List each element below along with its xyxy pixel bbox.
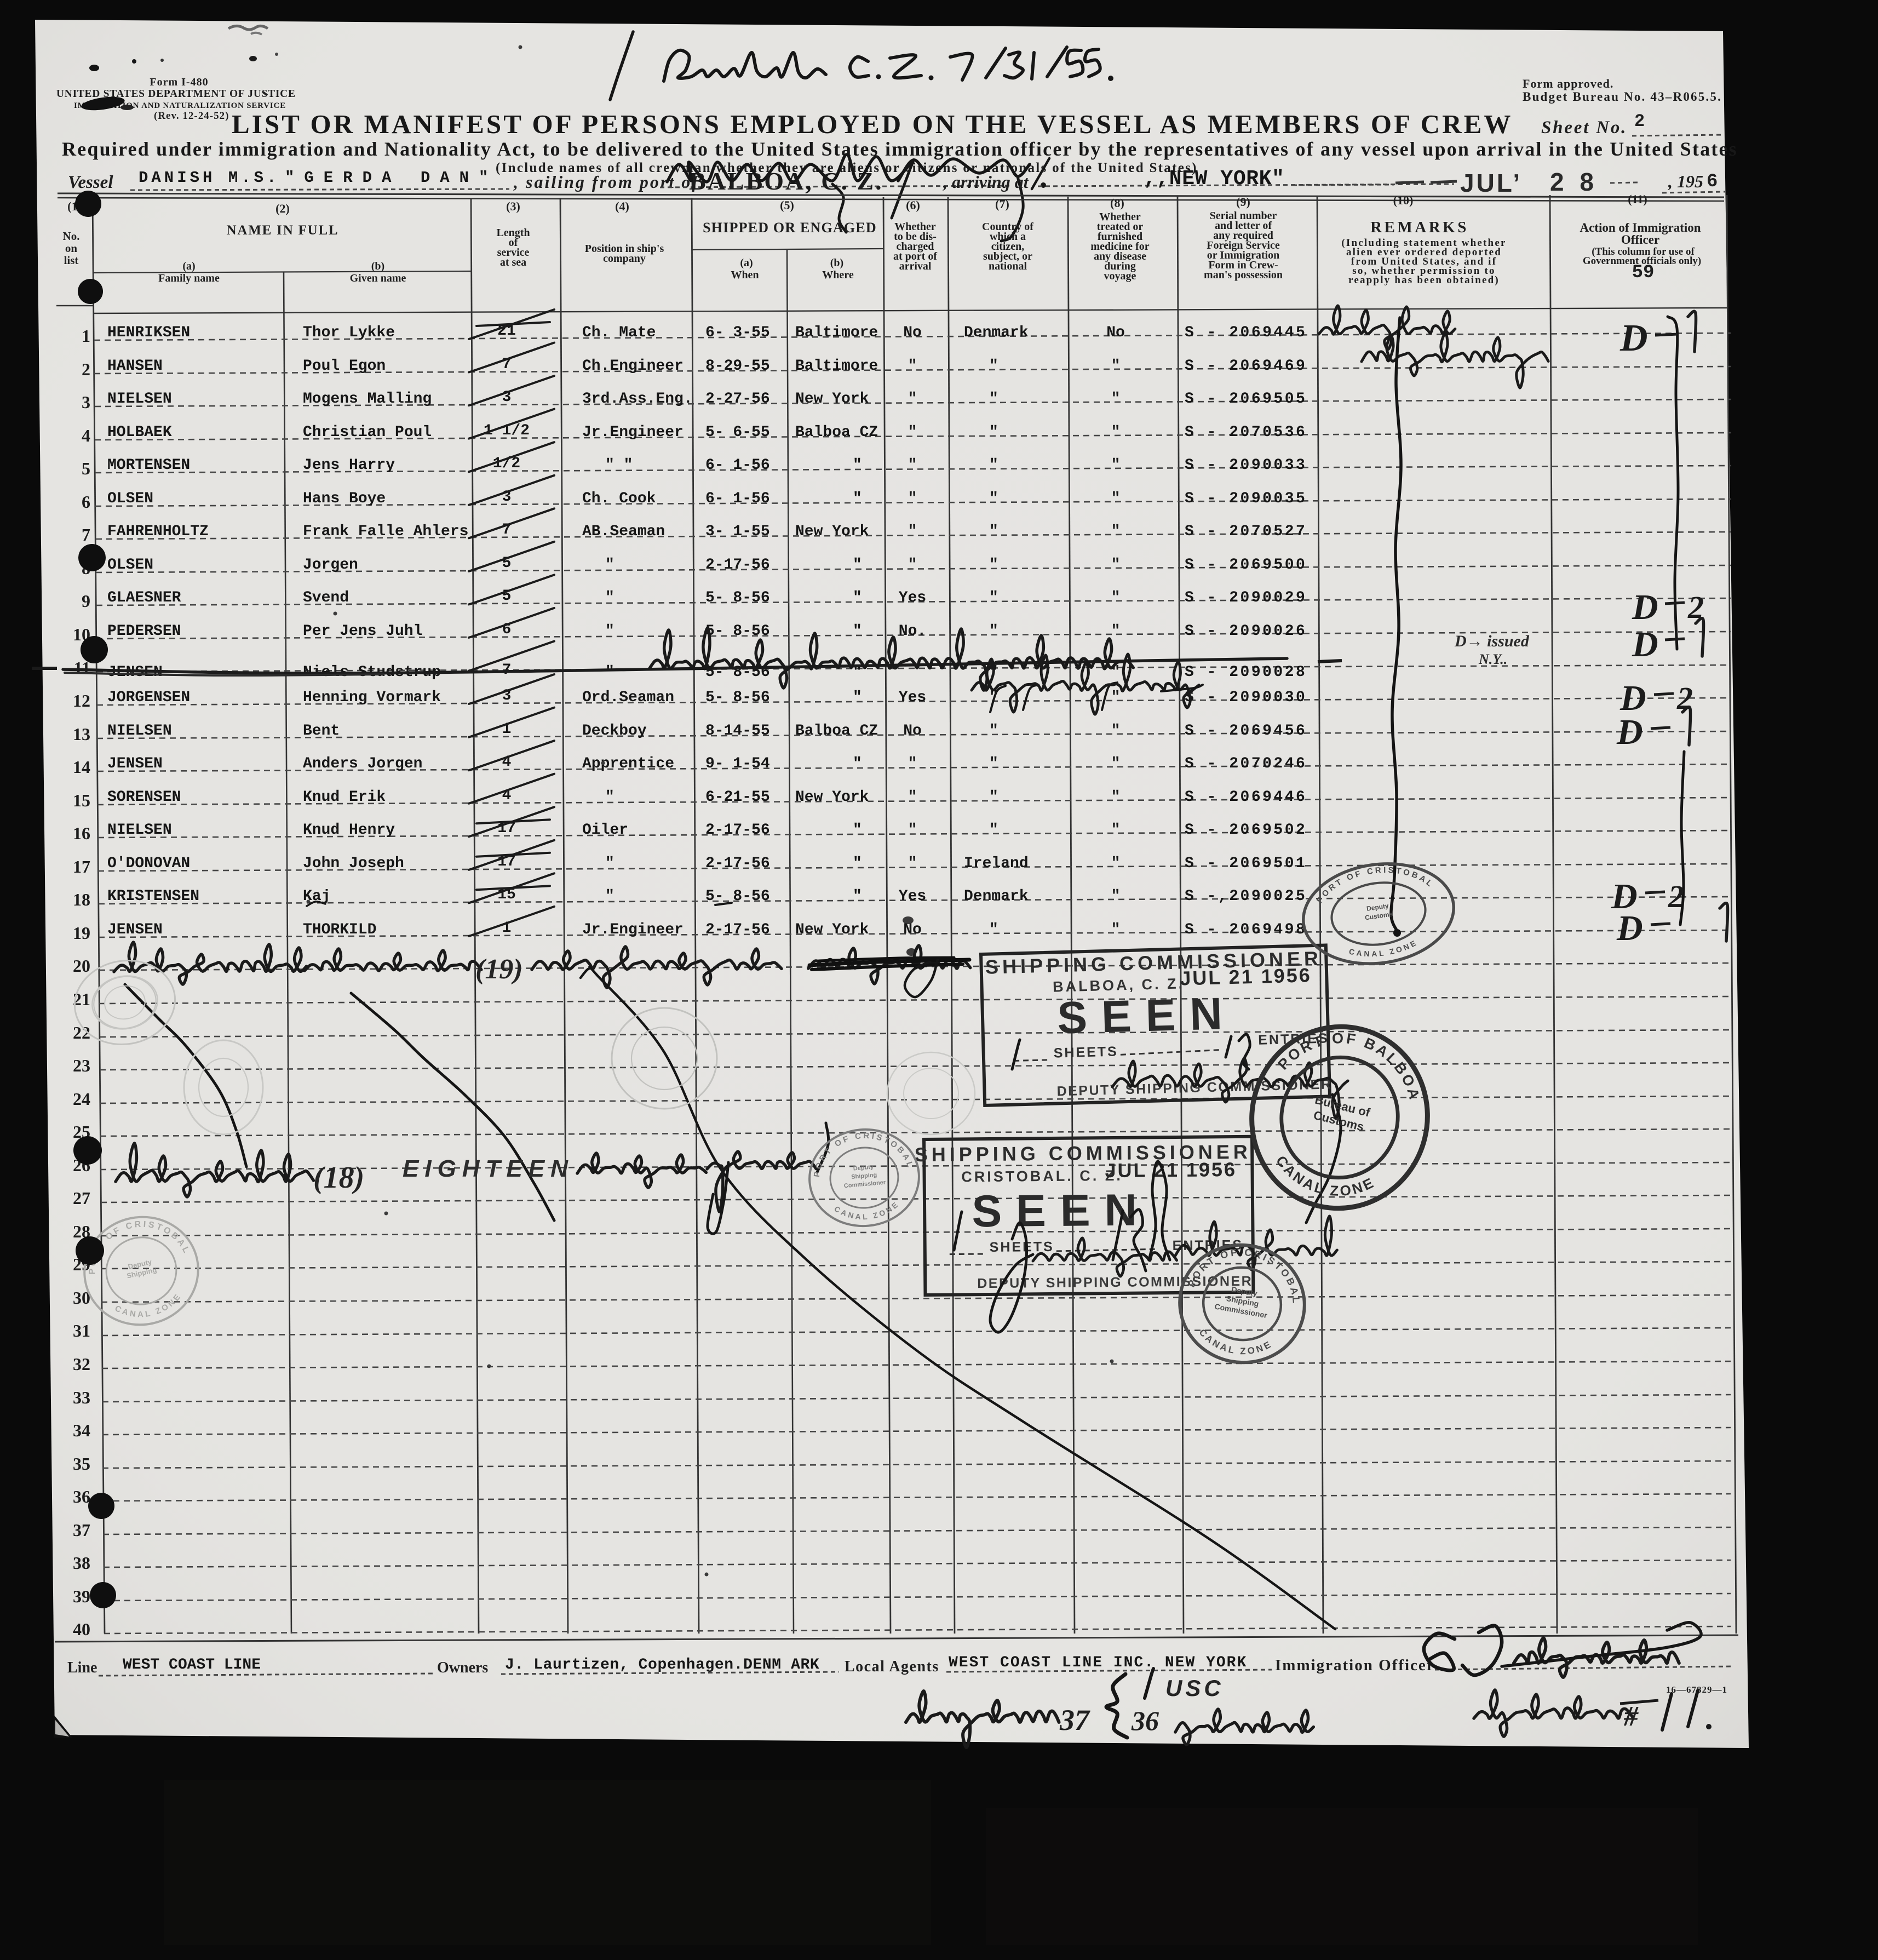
svg-text:5: 5 <box>82 459 90 478</box>
svg-text:Ch. Cook: Ch. Cook <box>582 490 656 507</box>
svg-text:": " <box>989 921 998 938</box>
svg-text:PEDERSEN: PEDERSEN <box>107 623 181 640</box>
svg-text:": " <box>1111 557 1121 574</box>
svg-text:36: 36 <box>1131 1705 1159 1736</box>
svg-text:": " <box>1111 589 1121 606</box>
svg-text:MORTENSEN: MORTENSEN <box>107 457 190 474</box>
svg-text:Denmark: Denmark <box>964 888 1029 905</box>
svg-text:6- 3-55: 6- 3-55 <box>705 324 770 341</box>
svg-text:,,NEW YORK": ,,NEW YORK" <box>1144 167 1284 191</box>
svg-text:, arriving at: , arriving at <box>943 172 1029 192</box>
svg-text:Vessel: Vessel <box>68 173 113 192</box>
svg-text:New York: New York <box>795 789 869 806</box>
svg-text:JENSEN: JENSEN <box>107 755 163 772</box>
svg-text:9- 1-54: 9- 1-54 <box>705 755 770 772</box>
svg-text:Form approved.: Form approved. <box>1523 77 1613 90</box>
svg-text:15: 15 <box>73 790 90 810</box>
svg-text:D: D <box>1632 624 1658 664</box>
svg-text:": " <box>1111 689 1121 706</box>
svg-text:(3): (3) <box>506 199 520 213</box>
svg-text:New York: New York <box>795 921 869 938</box>
svg-text:S -,2090025: S -,2090025 <box>1185 888 1307 905</box>
svg-text:S - 2090026: S - 2090026 <box>1185 623 1307 640</box>
svg-text:": " <box>853 755 862 772</box>
svg-text:Ch.Engineer: Ch.Engineer <box>582 358 684 375</box>
svg-text:": " <box>1111 822 1121 839</box>
svg-text:HENRIKSEN: HENRIKSEN <box>107 324 190 341</box>
svg-text:No: No <box>903 921 922 938</box>
svg-text:": " <box>908 523 917 540</box>
svg-text:5- 8-56: 5- 8-56 <box>705 589 770 606</box>
svg-text:(2): (2) <box>275 202 290 215</box>
svg-text:": " <box>989 490 998 507</box>
svg-text:Budget Bureau No. 43–R065.5.: Budget Bureau No. 43–R065.5. <box>1523 90 1722 104</box>
svg-text:S - 2070536: S - 2070536 <box>1185 424 1307 441</box>
svg-text:EIGHTEEN: EIGHTEEN <box>403 1155 574 1182</box>
svg-text:AB.Seaman: AB.Seaman <box>582 523 665 540</box>
svg-text:": " <box>1111 723 1121 740</box>
svg-text:(Rev. 12-24-52): (Rev. 12-24-52) <box>154 110 229 122</box>
svg-text:23: 23 <box>73 1056 90 1075</box>
svg-text:3- 1-55: 3- 1-55 <box>705 523 770 540</box>
svg-text:"GERDA DAN": "GERDA DAN" <box>285 169 498 187</box>
svg-text:": " <box>853 457 862 474</box>
svg-text:8-29-55: 8-29-55 <box>705 358 770 375</box>
svg-text:New York: New York <box>795 391 869 408</box>
svg-text:O'DONOVAN: O'DONOVAN <box>107 855 190 872</box>
svg-text:Required under immigration and: Required under immigration and Nationali… <box>62 138 1738 160</box>
svg-text:": " <box>908 490 917 507</box>
svg-text:JUL 21 1956: JUL 21 1956 <box>1105 1158 1237 1182</box>
svg-text:": " <box>605 557 614 574</box>
svg-text:UNITED STATES DEPARTMENT OF JU: UNITED STATES DEPARTMENT OF JUSTICE <box>56 88 296 100</box>
svg-text:WEST COAST LINE: WEST COAST LINE <box>123 1657 261 1674</box>
svg-text:NIELSEN: NIELSEN <box>107 822 172 839</box>
svg-text:(10): (10) <box>1393 193 1414 207</box>
svg-text:S - 2090030: S - 2090030 <box>1185 689 1307 706</box>
svg-text:": " <box>989 789 998 806</box>
svg-text:Jr.Engineer: Jr.Engineer <box>582 424 684 441</box>
svg-text:7: 7 <box>82 525 90 545</box>
svg-text:35: 35 <box>73 1454 90 1474</box>
svg-text:HANSEN: HANSEN <box>107 358 163 375</box>
svg-text:national: national <box>989 260 1027 272</box>
svg-text:JUL’: JUL’ <box>1460 169 1522 197</box>
svg-text:": " <box>605 589 614 606</box>
svg-text:No: No <box>1106 324 1125 341</box>
svg-text:No: No <box>903 324 922 341</box>
svg-text:6: 6 <box>1707 171 1718 192</box>
svg-text:S - 2069446: S - 2069446 <box>1185 789 1307 806</box>
svg-text:(b): (b) <box>371 260 384 272</box>
svg-text:Christian Poul: Christian Poul <box>303 424 432 441</box>
svg-text:2-17-56: 2-17-56 <box>705 921 770 938</box>
svg-text:": " <box>853 855 862 872</box>
svg-text:6- 1-56: 6- 1-56 <box>705 490 770 507</box>
svg-text:2-17-56: 2-17-56 <box>705 557 770 574</box>
svg-text:": " <box>908 855 917 872</box>
svg-text:3rd.Ass.Eng.: 3rd.Ass.Eng. <box>582 391 693 408</box>
svg-text:": " <box>853 689 862 706</box>
svg-text:NIELSEN: NIELSEN <box>107 391 172 408</box>
svg-text:59: 59 <box>1632 262 1655 283</box>
svg-text:JUL 21 1956: JUL 21 1956 <box>1180 964 1312 989</box>
svg-text:N.Y..: N.Y.. <box>1478 651 1507 667</box>
svg-text:": " <box>989 424 998 441</box>
svg-text:Balboa CZ: Balboa CZ <box>795 723 878 740</box>
svg-text:S - 2069445: S - 2069445 <box>1185 324 1307 341</box>
svg-text:(a): (a) <box>740 257 753 269</box>
svg-text:": " <box>989 358 998 375</box>
svg-text:, 195: , 195 <box>1668 171 1703 191</box>
svg-text:": " <box>1111 424 1121 441</box>
svg-text:(8): (8) <box>1110 196 1124 210</box>
svg-text:Immigration Officer: Immigration Officer <box>1275 1657 1435 1674</box>
svg-text:Jr.Engineer: Jr.Engineer <box>582 921 684 938</box>
svg-text:SHEETS: SHEETS <box>990 1239 1054 1255</box>
svg-text:S - 2069500: S - 2069500 <box>1185 557 1307 574</box>
svg-text:Knud Erik: Knud Erik <box>303 789 386 806</box>
svg-text:14: 14 <box>73 757 90 777</box>
svg-text:THORKILD: THORKILD <box>303 921 376 938</box>
svg-text:(6): (6) <box>906 198 920 212</box>
svg-text:(7): (7) <box>995 197 1009 211</box>
svg-text:39: 39 <box>73 1586 90 1606</box>
svg-text:": " <box>908 358 917 375</box>
svg-text:D: D <box>1616 712 1643 752</box>
svg-text:Ch. Mate: Ch. Mate <box>582 324 656 341</box>
svg-text:DANISH M.S.: DANISH M.S. <box>139 169 279 187</box>
svg-text:Hans Boye: Hans Boye <box>303 490 386 507</box>
svg-text:(18): (18) <box>313 1161 364 1195</box>
svg-text:": " <box>1111 623 1121 640</box>
svg-text:32: 32 <box>73 1354 90 1374</box>
svg-text:Sheet No.: Sheet No. <box>1541 118 1627 137</box>
svg-text:": " <box>853 589 862 606</box>
svg-text:Oiler: Oiler <box>582 822 628 839</box>
svg-text:5- 6-55: 5- 6-55 <box>705 424 770 441</box>
svg-text:Yes: Yes <box>899 888 926 905</box>
svg-text:37: 37 <box>73 1520 90 1540</box>
svg-text:Form I-480: Form I-480 <box>150 76 208 88</box>
svg-text:": " <box>989 457 998 474</box>
svg-text:2-27-56: 2-27-56 <box>705 391 770 408</box>
svg-text:(19): (19) <box>475 954 523 985</box>
svg-text:12: 12 <box>73 691 90 710</box>
svg-text:No.: No. <box>63 230 80 243</box>
svg-text:": " <box>989 623 998 640</box>
svg-text:24: 24 <box>73 1089 90 1109</box>
svg-text:20: 20 <box>73 956 90 976</box>
svg-text:JORGENSEN: JORGENSEN <box>107 689 190 706</box>
svg-text:S - 2070527: S - 2070527 <box>1185 523 1307 540</box>
svg-text:": " <box>853 623 862 640</box>
svg-text:Frank Falle Ahlers: Frank Falle Ahlers <box>303 523 468 540</box>
svg-text:Per Jens Juhl: Per Jens Juhl <box>303 623 422 640</box>
svg-text:John Joseph: John Joseph <box>303 855 404 872</box>
svg-text:Knud Henry: Knud Henry <box>303 822 395 839</box>
svg-text:D: D <box>1619 317 1648 359</box>
svg-text:": " <box>908 822 917 839</box>
svg-text:": " <box>908 557 917 574</box>
svg-text:NIELSEN: NIELSEN <box>107 723 172 740</box>
svg-text:17: 17 <box>73 857 90 876</box>
svg-text:Family name: Family name <box>158 272 220 284</box>
svg-text:36: 36 <box>73 1487 90 1506</box>
svg-text:6- 1-56: 6- 1-56 <box>705 457 770 474</box>
svg-text:34: 34 <box>73 1420 90 1440</box>
svg-text:": " <box>605 789 614 806</box>
svg-text:FAHRENHOLTZ: FAHRENHOLTZ <box>107 523 209 540</box>
svg-text:": " <box>989 523 998 540</box>
svg-text:1: 1 <box>82 326 90 346</box>
svg-text:16: 16 <box>73 823 90 843</box>
svg-text:": " <box>989 391 998 408</box>
svg-text:Anders Jorgen: Anders Jorgen <box>303 755 422 772</box>
svg-text:JENSEN: JENSEN <box>107 921 163 938</box>
svg-text:NAME IN FULL: NAME IN FULL <box>227 223 339 238</box>
svg-text:33: 33 <box>73 1388 90 1407</box>
svg-text:SHEETS: SHEETS <box>1053 1044 1118 1061</box>
svg-text:Baltimore: Baltimore <box>795 324 878 341</box>
svg-text:Yes: Yes <box>899 589 926 606</box>
svg-text:18: 18 <box>73 890 90 909</box>
svg-text:Deckboy: Deckboy <box>582 723 647 740</box>
svg-text:": " <box>989 755 998 772</box>
svg-text:": " <box>1111 490 1121 507</box>
svg-text:Apprentice: Apprentice <box>582 755 674 772</box>
svg-text:": " <box>989 723 998 740</box>
svg-text:No: No <box>903 723 922 740</box>
svg-text:5- 8-56: 5- 8-56 <box>705 623 770 640</box>
svg-text:Denmark: Denmark <box>964 324 1029 341</box>
svg-text:D: D <box>1616 908 1643 948</box>
svg-text:S - 2090033: S - 2090033 <box>1185 457 1307 474</box>
svg-text:19: 19 <box>73 923 90 943</box>
svg-text:": " <box>908 789 917 806</box>
svg-text:OLSEN: OLSEN <box>107 490 153 507</box>
svg-text:": " <box>853 888 862 905</box>
svg-text:Svend: Svend <box>303 589 349 606</box>
svg-text:": " <box>605 623 614 640</box>
svg-text:S - 2070246: S - 2070246 <box>1185 755 1307 772</box>
svg-text:8-14-55: 8-14-55 <box>705 723 770 740</box>
svg-text:2: 2 <box>82 359 90 379</box>
svg-text:": " <box>1111 755 1121 772</box>
svg-text:Ireland: Ireland <box>964 855 1029 872</box>
svg-text:2-17-56: 2-17-56 <box>705 822 770 839</box>
svg-text:3: 3 <box>82 392 90 412</box>
svg-text:": " <box>1111 358 1121 375</box>
svg-text:S - 2069498: S - 2069498 <box>1185 921 1307 938</box>
svg-text:S - 2069501: S - 2069501 <box>1185 855 1307 872</box>
svg-text:6: 6 <box>82 492 90 512</box>
svg-text:SEEN: SEEN <box>1056 989 1237 1044</box>
svg-text:": " <box>1111 921 1121 938</box>
svg-text:S - 2069469: S - 2069469 <box>1185 358 1307 375</box>
svg-text:SEEN: SEEN <box>972 1185 1151 1236</box>
svg-text:": " <box>853 822 862 839</box>
svg-text:Line: Line <box>67 1659 97 1676</box>
svg-text:2-17-56: 2-17-56 <box>705 855 770 872</box>
svg-text:S - 2069505: S - 2069505 <box>1185 391 1307 408</box>
svg-text:6-21-55: 6-21-55 <box>705 789 770 806</box>
svg-text:": " <box>1111 855 1121 872</box>
svg-text:man's possession: man's possession <box>1204 269 1283 281</box>
svg-text:4: 4 <box>82 426 90 445</box>
svg-text:Balboa CZ: Balboa CZ <box>795 424 878 441</box>
svg-text:": " <box>989 589 998 606</box>
svg-text:voyage: voyage <box>1104 270 1136 282</box>
svg-text:": " <box>605 855 614 872</box>
svg-text:": " <box>908 391 917 408</box>
svg-text:S - 2090029: S - 2090029 <box>1185 589 1307 606</box>
svg-text:CRISTOBAL. C. Z.: CRISTOBAL. C. Z. <box>961 1167 1123 1185</box>
svg-text:(11): (11) <box>1628 192 1647 206</box>
svg-text:" ": " " <box>605 457 633 474</box>
svg-text:Yes: Yes <box>899 689 926 706</box>
svg-text:(b): (b) <box>830 257 843 269</box>
svg-text:(a): (a) <box>182 260 195 272</box>
svg-text:GLAESNER: GLAESNER <box>107 589 181 606</box>
svg-text:company: company <box>603 253 646 265</box>
svg-text:": " <box>908 457 917 474</box>
svg-text:Jorgen: Jorgen <box>303 557 358 574</box>
svg-text:38: 38 <box>73 1553 90 1573</box>
svg-text:37: 37 <box>1059 1704 1090 1737</box>
svg-text:": " <box>1111 391 1121 408</box>
svg-text:REMARKS: REMARKS <box>1370 219 1469 236</box>
svg-text:New York: New York <box>795 523 869 540</box>
svg-text:#: # <box>1623 1701 1639 1732</box>
svg-text:J. Laurtizen, Copenhagen.DENM: J. Laurtizen, Copenhagen.DENM ARK <box>505 1657 819 1674</box>
svg-text:on: on <box>65 242 78 255</box>
svg-text:SORENSEN: SORENSEN <box>107 789 181 806</box>
svg-text:40: 40 <box>73 1619 90 1639</box>
svg-text:": " <box>605 888 614 905</box>
svg-text:": " <box>853 490 862 507</box>
svg-text:When: When <box>731 269 759 281</box>
svg-text:": " <box>605 664 614 681</box>
svg-text:reapply has been obtained): reapply has been obtained) <box>1348 274 1500 286</box>
svg-text:S - 2090028: S - 2090028 <box>1185 664 1307 681</box>
svg-text:Henning Vormark: Henning Vormark <box>303 689 441 706</box>
svg-text:HOLBAEK: HOLBAEK <box>107 424 172 441</box>
svg-text:2 8: 2 8 <box>1550 168 1598 196</box>
svg-text:D: D <box>1632 587 1658 627</box>
svg-text:S - 2069456: S - 2069456 <box>1185 723 1307 740</box>
svg-text:USC: USC <box>1165 1675 1224 1701</box>
svg-text:": " <box>853 557 862 574</box>
svg-text:(9): (9) <box>1236 195 1250 209</box>
svg-text:Local Agents: Local Agents <box>845 1658 939 1675</box>
svg-text:27: 27 <box>73 1188 90 1208</box>
svg-text:": " <box>908 755 917 772</box>
svg-text:13: 13 <box>73 724 90 744</box>
svg-text:Where: Where <box>822 269 854 281</box>
svg-text:(5): (5) <box>780 198 794 212</box>
svg-text:(4): (4) <box>615 199 629 213</box>
svg-text:": " <box>989 822 998 839</box>
svg-text:5- 8-56: 5- 8-56 <box>705 689 770 706</box>
svg-text:Baltimore: Baltimore <box>795 358 878 375</box>
svg-text:5- 8-56: 5- 8-56 <box>705 888 770 905</box>
svg-text:": " <box>1111 789 1121 806</box>
svg-text:": " <box>908 424 917 441</box>
svg-text:Jens Harry: Jens Harry <box>303 457 395 474</box>
svg-text:D→ issued: D→ issued <box>1454 632 1530 650</box>
svg-text:No.: No. <box>899 623 926 640</box>
svg-text:Thor Lykke: Thor Lykke <box>303 324 395 341</box>
svg-text:": " <box>989 557 998 574</box>
svg-text:": " <box>1111 523 1121 540</box>
svg-text:KRISTENSEN: KRISTENSEN <box>107 888 199 905</box>
svg-text:WEST COAST LINE INC. NEW YORK: WEST COAST LINE INC. NEW YORK <box>949 1654 1247 1671</box>
svg-text:31: 31 <box>73 1321 90 1340</box>
svg-text:": " <box>1111 457 1121 474</box>
svg-text:SHIPPED OR ENGAGED: SHIPPED OR ENGAGED <box>703 220 877 236</box>
svg-text:2: 2 <box>1668 879 1684 914</box>
svg-text:Given name: Given name <box>350 272 406 284</box>
svg-text:2: 2 <box>1634 111 1645 131</box>
svg-text:S - 2069502: S - 2069502 <box>1185 822 1307 839</box>
svg-text:at sea: at sea <box>500 256 526 268</box>
svg-text:Ord.Seaman: Ord.Seaman <box>582 689 674 706</box>
svg-text:arrival: arrival <box>899 260 932 272</box>
svg-text:Officer: Officer <box>1621 233 1659 247</box>
svg-text:LIST OR MANIFEST OF PERSONS EM: LIST OR MANIFEST OF PERSONS EMPLOYED ON … <box>232 109 1513 139</box>
svg-text:Bent: Bent <box>303 723 340 740</box>
svg-text:list: list <box>64 254 79 267</box>
svg-text:9: 9 <box>82 591 90 611</box>
svg-text:Mogens Malling: Mogens Malling <box>303 391 432 408</box>
svg-text:Owners: Owners <box>437 1659 488 1676</box>
svg-text:S - 2090035: S - 2090035 <box>1185 490 1307 507</box>
svg-text:": " <box>1111 888 1121 905</box>
svg-text:OLSEN: OLSEN <box>107 557 153 574</box>
svg-text:Poul Egon: Poul Egon <box>303 358 386 375</box>
